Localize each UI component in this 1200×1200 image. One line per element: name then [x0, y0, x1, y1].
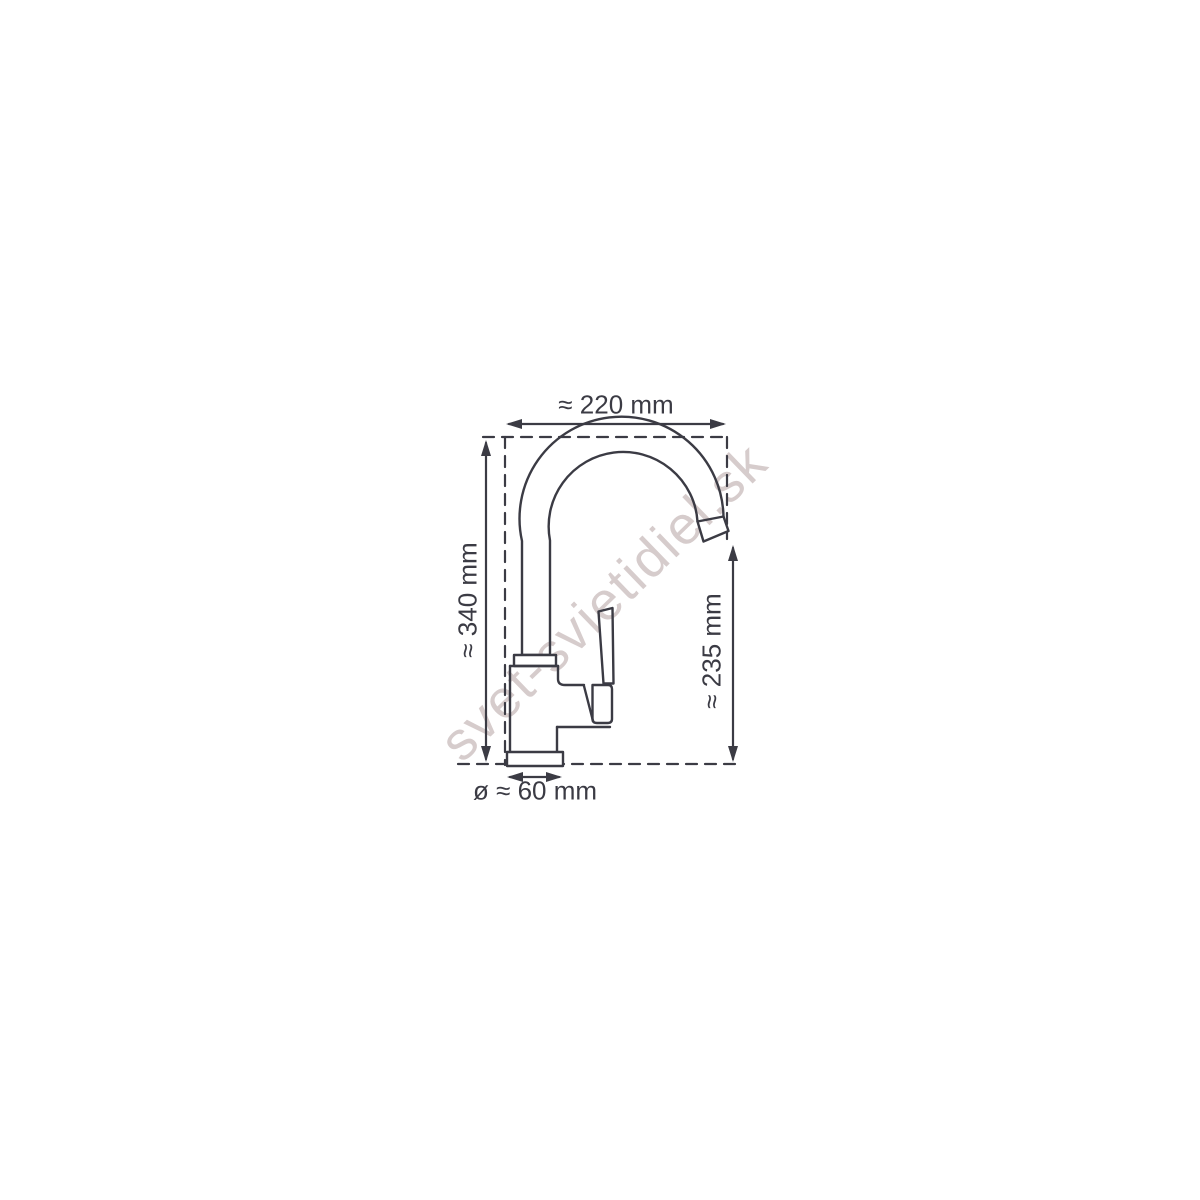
faucet-base-flange [507, 752, 563, 766]
faucet-technical-drawing [0, 0, 1200, 1200]
faucet-aerator-line [698, 517, 724, 522]
dimension-label-width: ≈ 220 mm [558, 390, 673, 421]
faucet-collar [514, 655, 556, 666]
dimension-label-total-height: ≈ 340 mm [453, 542, 484, 657]
product-dimension-diagram: svet-svietidiel.sk [0, 0, 1200, 1200]
faucet-handle-base [593, 685, 613, 723]
faucet-body [510, 666, 612, 752]
dimension-label-base-diameter: ø ≈ 60 mm [473, 776, 597, 807]
dimension-arrow-outlet-height [728, 545, 738, 762]
dimension-label-outlet-height: ≈ 235 mm [697, 593, 728, 708]
faucet-outline [507, 417, 729, 766]
faucet-handle-lever [599, 608, 614, 684]
dimension-arrow-width [506, 419, 726, 429]
